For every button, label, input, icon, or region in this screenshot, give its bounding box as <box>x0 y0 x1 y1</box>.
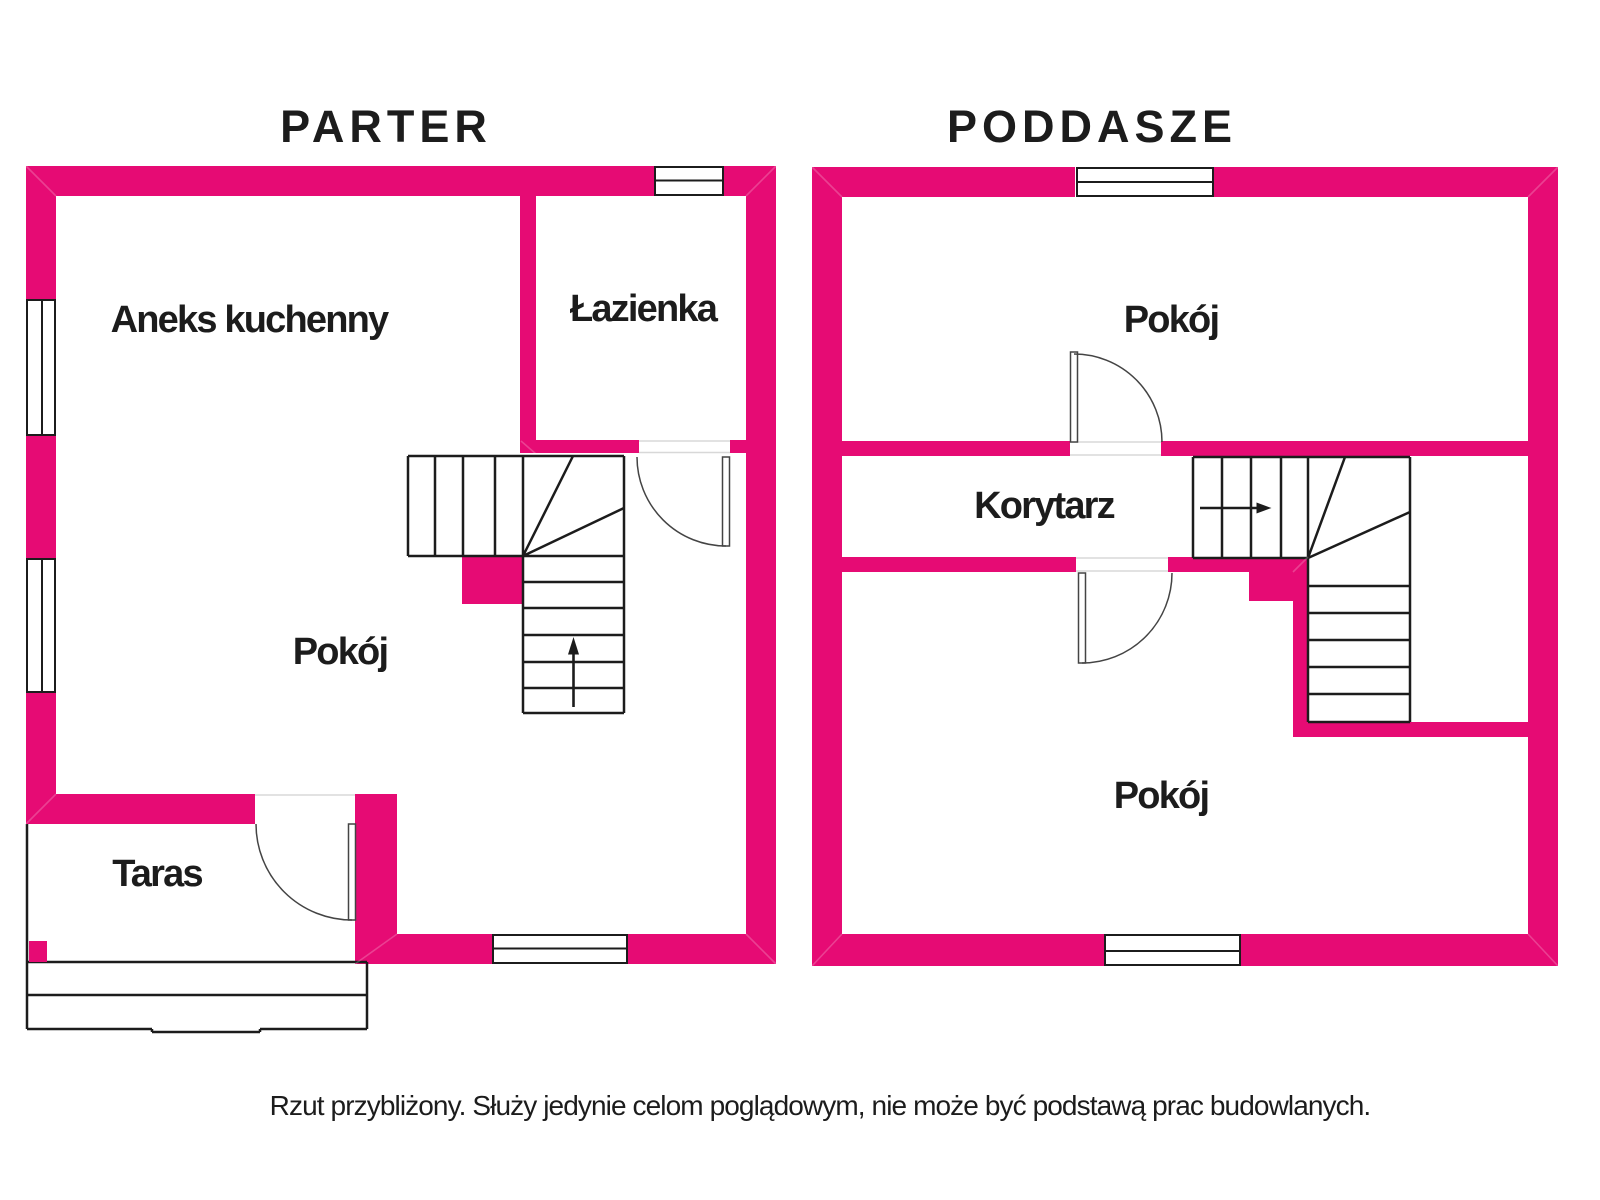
svg-text:Pokój: Pokój <box>1124 299 1218 341</box>
svg-text:Aneks kuchenny: Aneks kuchenny <box>111 299 389 341</box>
svg-text:Łazienka: Łazienka <box>570 288 719 330</box>
svg-text:Pokój: Pokój <box>1114 775 1208 817</box>
svg-text:Pokój: Pokój <box>293 631 387 673</box>
svg-text:PODDASZE: PODDASZE <box>947 101 1237 152</box>
svg-text:PARTER: PARTER <box>280 101 492 152</box>
svg-text:Korytarz: Korytarz <box>974 485 1115 527</box>
svg-text:Rzut przybliżony. Służy jedyni: Rzut przybliżony. Służy jedynie celom po… <box>270 1090 1371 1121</box>
svg-text:Taras: Taras <box>112 853 202 895</box>
